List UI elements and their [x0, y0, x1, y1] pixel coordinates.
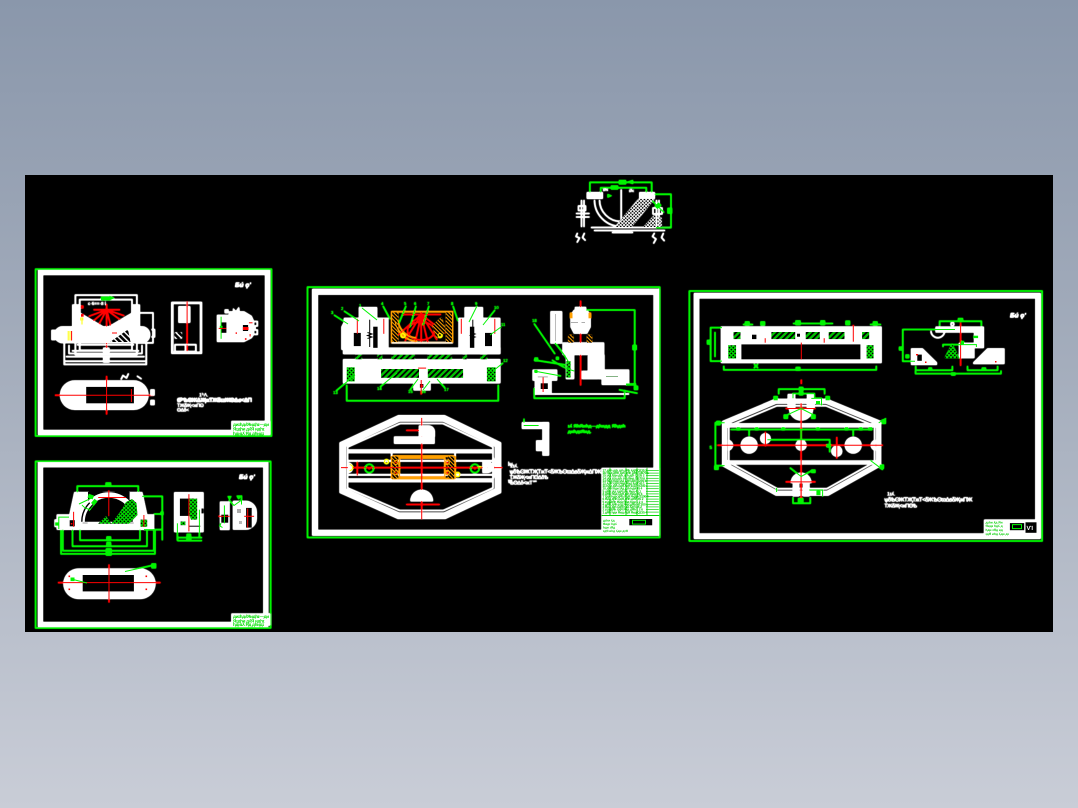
svg-text:15: 15 [408, 389, 413, 394]
svg-text:7: 7 [427, 301, 430, 306]
svg-text:9: 9 [475, 301, 478, 306]
svg-text:Бú ϙ': Бú ϙ' [1010, 313, 1026, 320]
svg-text:c·6==·8 ṫ: c·6==·8 ṫ [88, 301, 107, 306]
svg-text:һдиɪʎ Яд дһидɪ: һдиɪʎ Яд дһидɪ [233, 431, 264, 436]
svg-text:16: 16 [421, 389, 426, 394]
svg-text:11: 11 [501, 322, 506, 327]
svg-text:ѴӀ: ѴӀ [1027, 525, 1034, 532]
svg-text:ɪдЯ иһд ʎди дɪЯ: ɪдЯ иһд ʎди дɪЯ [603, 529, 629, 533]
svg-text:17: 17 [444, 387, 449, 392]
svg-text:5: 5 [404, 301, 407, 306]
svg-text:1 дЯһ һди Яид ʎдЯ Яид Q235 4: 1 дЯһ һди Яид ʎдЯ Яид Q235 4 [603, 510, 648, 514]
svg-text:Бú ϙ': Бú ϙ' [235, 282, 251, 289]
svg-text:13: 13 [333, 390, 338, 395]
svg-text:һдиɪʎ Яд дһидɪ: һдиɪʎ Яд дһидɪ [233, 622, 264, 627]
svg-text:Бú ϙ': Бú ϙ' [239, 474, 255, 481]
svg-text:18: 18 [532, 318, 537, 323]
svg-text:ѢʘΔδ˂жΤ℠: ѢʘΔδ˂жΤ℠ [510, 480, 538, 487]
svg-text:ΤЖδҖ˂жΠʘѢ: ΤЖδҖ˂жΠʘѢ [884, 504, 918, 510]
svg-text:14: 14 [377, 386, 382, 391]
svg-text:ɪдЯ иһд ʎди дɪ: ɪдЯ иһд ʎди дɪ [986, 532, 1010, 536]
svg-text:10: 10 [494, 305, 499, 310]
svg-text:2: 2 [341, 306, 344, 311]
svg-text:8: 8 [451, 301, 454, 306]
svg-text:4: 4 [381, 301, 384, 306]
svg-text:ѱδѢʘЖΤҖΤжΤ˂δЖѢʘϖΔϭδҖжΠЖ: ѱδѢʘЖΤҖΤжΤ˂δЖѢʘϖΔϭδҖжΠЖ [884, 497, 973, 504]
svg-text:Øs: Øs [603, 187, 608, 192]
svg-text:1: 1 [359, 303, 362, 308]
svg-text:ʘΔδ˂: ʘΔδ˂ [177, 408, 189, 414]
svg-text:6: 6 [414, 301, 417, 306]
svg-text:Øc: Øc [629, 188, 634, 193]
svg-text:12: 12 [503, 358, 508, 363]
svg-text:ɪʎ ЯһЯиһд—дһидд Яһдɪһ: ɪʎ ЯһЯиһд—дһидд Яһдɪһ [568, 423, 626, 428]
svg-text:5: 5 [710, 445, 713, 450]
svg-text:3: 3 [331, 310, 334, 315]
svg-text:диһдɪЯид.: диһдɪЯид. [568, 429, 592, 434]
